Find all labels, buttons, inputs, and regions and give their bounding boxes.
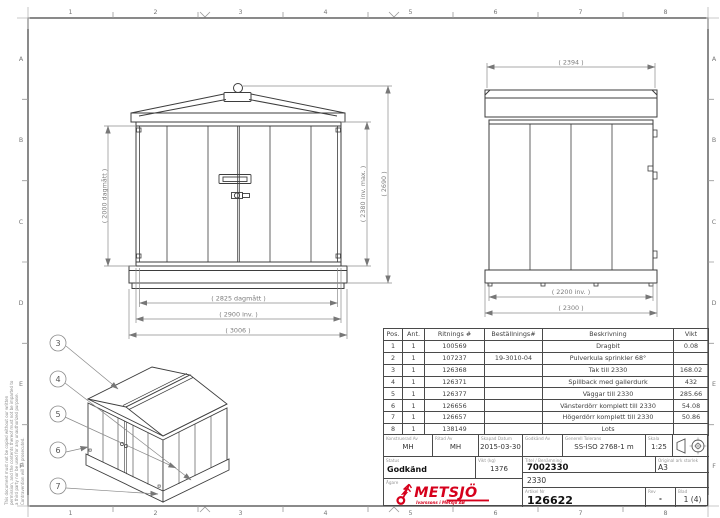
- col-header-pos: Pos.: [384, 329, 403, 341]
- projection-symbol-icon: [673, 435, 709, 457]
- zone-col-label: 3: [238, 510, 242, 517]
- field-label: Konstruerad Av: [386, 436, 418, 441]
- cell-pos: 6: [384, 400, 403, 412]
- cell-bestallnings: [485, 340, 543, 352]
- field-value: 1376: [476, 465, 522, 473]
- field-value: 1:25: [646, 443, 672, 451]
- field-value: SS-ISO 2768-1 m: [563, 443, 645, 451]
- cell-ant: 1: [403, 340, 425, 352]
- cell-pos: 1: [384, 340, 403, 352]
- table-header-row: Pos. Ant. Ritnings # Beställnings# Beskr…: [384, 329, 709, 341]
- field-label: Generell Tolerans: [565, 436, 601, 441]
- field-label: Ritad Av: [435, 436, 452, 441]
- cell-vikt: 50.86: [674, 412, 709, 424]
- front-view: [129, 84, 347, 289]
- logo-tree-icon: [398, 484, 412, 503]
- table-row: 3 1 126368 Tak till 2330 168.02: [384, 364, 709, 376]
- cell-vikt: 285.66: [674, 388, 709, 400]
- titleblock-cell-projection: [673, 435, 709, 457]
- zone-col-label: 3: [238, 9, 242, 16]
- cell-ant: 1: [403, 376, 425, 388]
- titleblock-cell-godkand-av: Godkänd Av: [523, 435, 563, 457]
- zone-col-label: 7: [578, 9, 582, 16]
- balloon-5-label: 5: [55, 410, 60, 419]
- field-value: 126622: [527, 494, 573, 507]
- title-block: Konstruerad Av MH Ritad Av MH Skapad Dat…: [383, 434, 708, 506]
- cell-beskrivning: Väggar till 2330: [543, 388, 674, 400]
- titleblock-cell-skapad: Skapad Datum 2015-03-30: [479, 435, 523, 457]
- field-label: Rev: [648, 489, 656, 494]
- zone-row-label: D: [19, 300, 24, 307]
- zone-row-label: B: [712, 137, 716, 144]
- cell-bestallnings: [485, 412, 543, 424]
- cell-ant: 1: [403, 388, 425, 400]
- zone-row-label: E: [712, 381, 716, 388]
- col-header-beskrivning: Beskrivning: [543, 329, 674, 341]
- dim-front-total-height: ( 2690 ): [380, 171, 388, 196]
- logo-wordmark: METSJÖ: [414, 483, 477, 501]
- table-row: 2 1 107237 19-3010-04 Pulverkula sprinkl…: [384, 352, 709, 364]
- cell-bestallnings: [485, 388, 543, 400]
- titleblock-cell-status: Status Godkänd: [384, 457, 476, 479]
- titleblock-cell-artikel: Artikel Nr 126622: [523, 488, 646, 507]
- cell-ritnings: 126657: [425, 412, 485, 424]
- zone-col-label: 6: [493, 510, 497, 517]
- cell-ritnings: 107237: [425, 352, 485, 364]
- side-roof: [485, 90, 657, 117]
- table-row: 7 1 126657 Högerdörr komplett till 2330 …: [384, 412, 709, 424]
- cell-beskrivning: Vänsterdörr komplett till 2330: [543, 400, 674, 412]
- cell-beskrivning: Dragbit: [543, 340, 674, 352]
- field-value: 2330: [527, 476, 546, 485]
- cell-ritnings: 100569: [425, 340, 485, 352]
- zone-col-label: 8: [663, 9, 667, 16]
- cell-ant: 1: [403, 400, 425, 412]
- field-label: Godkänd Av: [525, 436, 550, 441]
- field-value: MH: [433, 443, 478, 451]
- table-row: 5 1 126377 Väggar till 2330 285.66: [384, 388, 709, 400]
- cell-pos: 2: [384, 352, 403, 364]
- cell-vikt: 432: [674, 376, 709, 388]
- dim-front-inner-height: ( 2380 inv. max. ): [359, 166, 367, 222]
- balloon-3-label: 3: [55, 339, 60, 348]
- cell-beskrivning: Högerdörr komplett till 2330: [543, 412, 674, 424]
- field-label: Skapad Datum: [481, 436, 512, 441]
- dim-side-top-width: ( 2394 ): [558, 59, 583, 67]
- door-handle-icon: [219, 175, 251, 199]
- side-base: [485, 270, 657, 283]
- field-value: 2015-03-30: [479, 443, 522, 451]
- cell-ritnings: 126377: [425, 388, 485, 400]
- zone-col-label: 1: [68, 510, 72, 517]
- zone-col-label: 8: [663, 510, 667, 517]
- cell-bestallnings: 19-3010-04: [485, 352, 543, 364]
- field-value: Godkänd: [387, 465, 427, 474]
- table-row: 1 1 100569 Dragbit 0.08: [384, 340, 709, 352]
- field-label: Skala: [648, 436, 659, 441]
- titleblock-cell-ritad: Ritad Av MH: [433, 435, 479, 457]
- cell-pos: 7: [384, 412, 403, 424]
- cell-ant: 1: [403, 412, 425, 424]
- cell-pos: 3: [384, 364, 403, 376]
- cell-ritnings: 126371: [425, 376, 485, 388]
- table-row: 4 1 126371 Spillback med gallerdurk 432: [384, 376, 709, 388]
- lifting-eye-icon: [234, 84, 243, 93]
- zone-row-label: F: [712, 463, 716, 470]
- col-header-vikt: Vikt: [674, 329, 709, 341]
- field-label: Status: [386, 458, 399, 463]
- cell-ritnings: 126368: [425, 364, 485, 376]
- field-label: Vikt (kg): [478, 458, 496, 463]
- field-value: -: [646, 495, 675, 503]
- cell-pos: 4: [384, 376, 403, 388]
- titleblock-cell-rev: Rev -: [646, 488, 676, 507]
- field-label: Blad: [678, 489, 687, 494]
- dimensions: ( 2000 dagmått ) ( 2380 inv. max. ) ( 26…: [100, 59, 658, 340]
- cell-vikt: 0.08: [674, 340, 709, 352]
- col-header-bestallnings: Beställnings#: [485, 329, 543, 341]
- zone-col-label: 4: [323, 9, 327, 16]
- drawing-sheet: 3 4 5 6 7 ( 2000 dagmått ) ( 2380: [0, 0, 720, 518]
- zone-col-label: 2: [153, 9, 157, 16]
- field-value: 1 (4): [676, 495, 709, 504]
- zone-row-label: A: [19, 56, 24, 63]
- front-base: [129, 266, 347, 283]
- col-header-ritnings: Ritnings #: [425, 329, 485, 341]
- field-value: A3: [658, 463, 668, 472]
- cell-ant: 1: [403, 352, 425, 364]
- balloon-7-label: 7: [55, 482, 60, 491]
- dim-front-opening-width: ( 2825 dagmått ): [211, 294, 266, 303]
- logo-tagline: Ivarssons i Metsjö AB: [416, 500, 465, 505]
- cell-ant: 1: [403, 364, 425, 376]
- titleblock-cell-benamning: 2330: [523, 473, 709, 488]
- cell-bestallnings: [485, 400, 543, 412]
- balloon-6-label: 6: [55, 446, 60, 455]
- zone-col-label: 2: [153, 510, 157, 517]
- field-value: MH: [384, 443, 432, 451]
- balloon-4-label: 4: [55, 375, 60, 384]
- zone-row-label: A: [712, 56, 717, 63]
- zone-row-label: C: [712, 219, 717, 226]
- cell-vikt: 54.08: [674, 400, 709, 412]
- titleblock-cell-konstruerad: Konstruerad Av MH: [384, 435, 433, 457]
- cell-vikt: [674, 352, 709, 364]
- cell-ritnings: 126656: [425, 400, 485, 412]
- zone-col-label: 6: [493, 9, 497, 16]
- zone-col-label: 4: [323, 510, 327, 517]
- table-row: 6 1 126656 Vänsterdörr komplett till 233…: [384, 400, 709, 412]
- dim-front-inner-width: ( 2900 inv. ): [219, 311, 258, 319]
- zone-row-label: B: [19, 137, 23, 144]
- field-value: 7002330: [527, 463, 568, 473]
- titleblock-cell-ark: Original ark storlek A3: [656, 457, 709, 473]
- titleblock-cell-agare: Ägare METSJÖ Ivarssons i Metsjö AB: [384, 479, 523, 507]
- dim-front-total-width: ( 3006 ): [225, 327, 250, 335]
- cell-vikt: 168.02: [674, 364, 709, 376]
- titleblock-cell-titel: Titel / Benämning 7002330: [523, 457, 656, 473]
- dim-side-total-width: ( 2300 ): [558, 304, 583, 312]
- front-roof-band: [131, 113, 345, 122]
- col-header-ant: Ant.: [403, 329, 425, 341]
- cell-bestallnings: [485, 364, 543, 376]
- titleblock-cell-tolerans: Generell Tolerans SS-ISO 2768-1 m: [563, 435, 646, 457]
- zone-col-label: 7: [578, 510, 582, 517]
- cell-beskrivning: Spillback med gallerdurk: [543, 376, 674, 388]
- zone-row-label: D: [712, 300, 717, 307]
- cell-pos: 5: [384, 388, 403, 400]
- zone-row-label: C: [19, 219, 24, 226]
- zone-col-label: 5: [408, 9, 412, 16]
- side-view: [485, 90, 657, 286]
- titleblock-cell-blad: Blad 1 (4): [676, 488, 709, 507]
- cell-beskrivning: Tak till 2330: [543, 364, 674, 376]
- cell-beskrivning: Pulverkula sprinkler 68°: [543, 352, 674, 364]
- iso-view: [86, 367, 229, 502]
- disclaimer-text: This document must not be copied without…: [4, 377, 25, 505]
- company-logo: METSJÖ Ivarssons i Metsjö AB: [390, 482, 516, 506]
- zone-col-label: 1: [68, 9, 72, 16]
- titleblock-cell-vikt: Vikt (kg) 1376: [476, 457, 523, 479]
- dim-front-door-height: ( 2000 dagmått ): [100, 169, 109, 224]
- titleblock-cell-skala: Skala 1:25: [646, 435, 673, 457]
- dim-side-inner-width: ( 2200 inv. ): [552, 288, 591, 296]
- cell-bestallnings: [485, 376, 543, 388]
- zone-col-label: 5: [408, 510, 412, 517]
- parts-table: Pos. Ant. Ritnings # Beställnings# Beskr…: [383, 328, 709, 436]
